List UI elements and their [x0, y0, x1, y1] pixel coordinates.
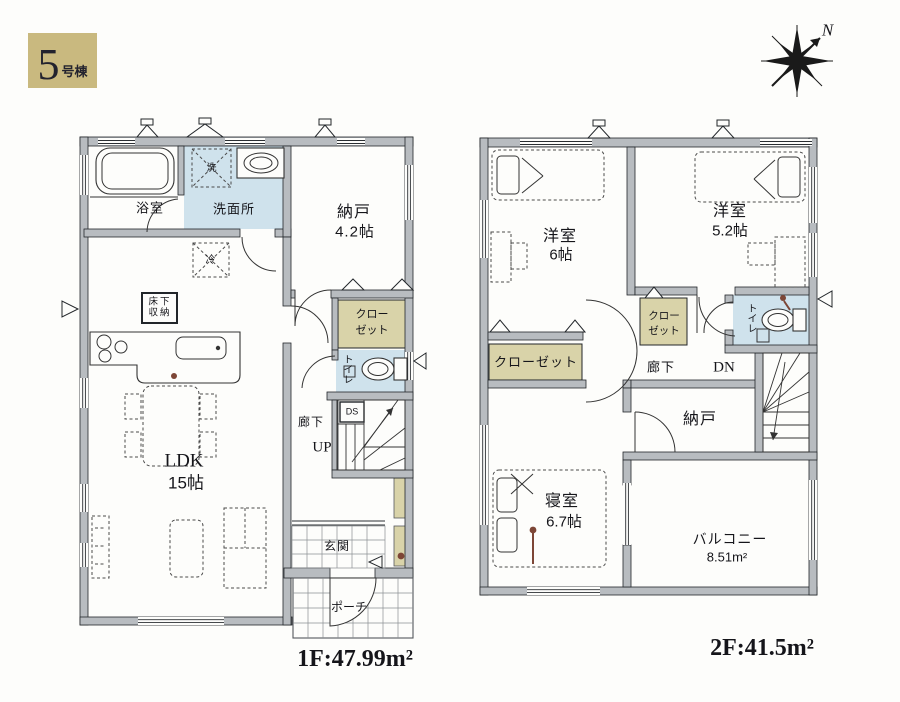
hallway2f-label: 廊下: [647, 361, 675, 374]
desk-west-room-b: [748, 237, 805, 287]
porch-label: ポーチ: [331, 601, 367, 613]
compass-north-label: N: [822, 22, 834, 39]
bedroom-label: 寝室: [545, 494, 579, 510]
floor1-plan: [62, 118, 426, 638]
bed-west-room-b: [695, 152, 805, 202]
building-number: 5: [37, 47, 59, 82]
building-suffix: 号棟: [61, 61, 87, 82]
bedroom-marker: [530, 527, 537, 534]
closet2f-small-label-2: ゼット: [648, 326, 680, 337]
west-room-a-label: 洋室: [543, 229, 577, 245]
tv-board: [92, 516, 109, 578]
stairs-up-label: UP: [312, 441, 331, 456]
floorplan-sheet: 5 号棟 N 浴室 洗 洗面所 納戸 4.2帖 冷 床下 収納 クロー ゼット …: [0, 0, 900, 702]
closet1f-label-1: クロー: [356, 310, 389, 321]
underfloor-label-2: 収納: [148, 308, 171, 318]
entrance-label: 玄関: [324, 540, 350, 552]
washbasin: [237, 148, 284, 178]
building-badge: 5 号棟: [28, 33, 97, 88]
balcony-slider: [623, 483, 631, 545]
fridge-label: 冷: [206, 256, 217, 266]
bathtub: [90, 148, 178, 197]
toilet2f-label: トイレ: [745, 303, 755, 333]
west-room-b-label: 洋室: [713, 204, 747, 220]
bedroom-size-label: 6.7帖: [546, 515, 582, 530]
stairs-down-label: DN: [713, 361, 735, 376]
closet1f-label-2: ゼット: [356, 326, 389, 337]
hallway1f-label: 廊下: [298, 416, 324, 428]
balcony-label: バルコニー: [693, 532, 768, 546]
west-room-b-size: 5.2帖: [712, 224, 748, 239]
washer-label: 洗: [207, 164, 218, 174]
kitchen-counter: [90, 332, 240, 383]
underfloor-label-1: 床下: [148, 297, 171, 307]
toilet1f-label: トイレ: [341, 354, 351, 384]
stairs-2f: [763, 353, 809, 452]
ldk-label: LDK: [164, 452, 203, 471]
entry-arrow: [369, 556, 382, 568]
floor2-area-label: 2F:41.5m²: [710, 636, 814, 660]
coffee-table: [170, 520, 203, 577]
west-room-a-size: 6帖: [549, 248, 572, 263]
storage1f-size: 4.2帖: [335, 225, 375, 240]
floor1-area-label: 1F:47.99m²: [297, 647, 413, 671]
floorplan-drawing: [0, 0, 900, 702]
balcony-size-label: 8.51m²: [707, 551, 747, 564]
storage2f-label: 納戸: [683, 412, 717, 428]
closet2f-small-label-1: クロー: [648, 311, 680, 322]
duct-space-label: DS: [346, 408, 359, 417]
bed-west-room-a: [492, 150, 604, 200]
closet2f-label: クローゼット: [494, 356, 578, 369]
bath-label: 浴室: [136, 202, 164, 215]
ldk-size-label: 15帖: [168, 475, 204, 492]
desk-west-room-a: [491, 232, 527, 282]
storage1f-label: 納戸: [337, 205, 371, 221]
washroom-label: 洗面所: [213, 203, 255, 216]
sofa: [224, 508, 266, 588]
